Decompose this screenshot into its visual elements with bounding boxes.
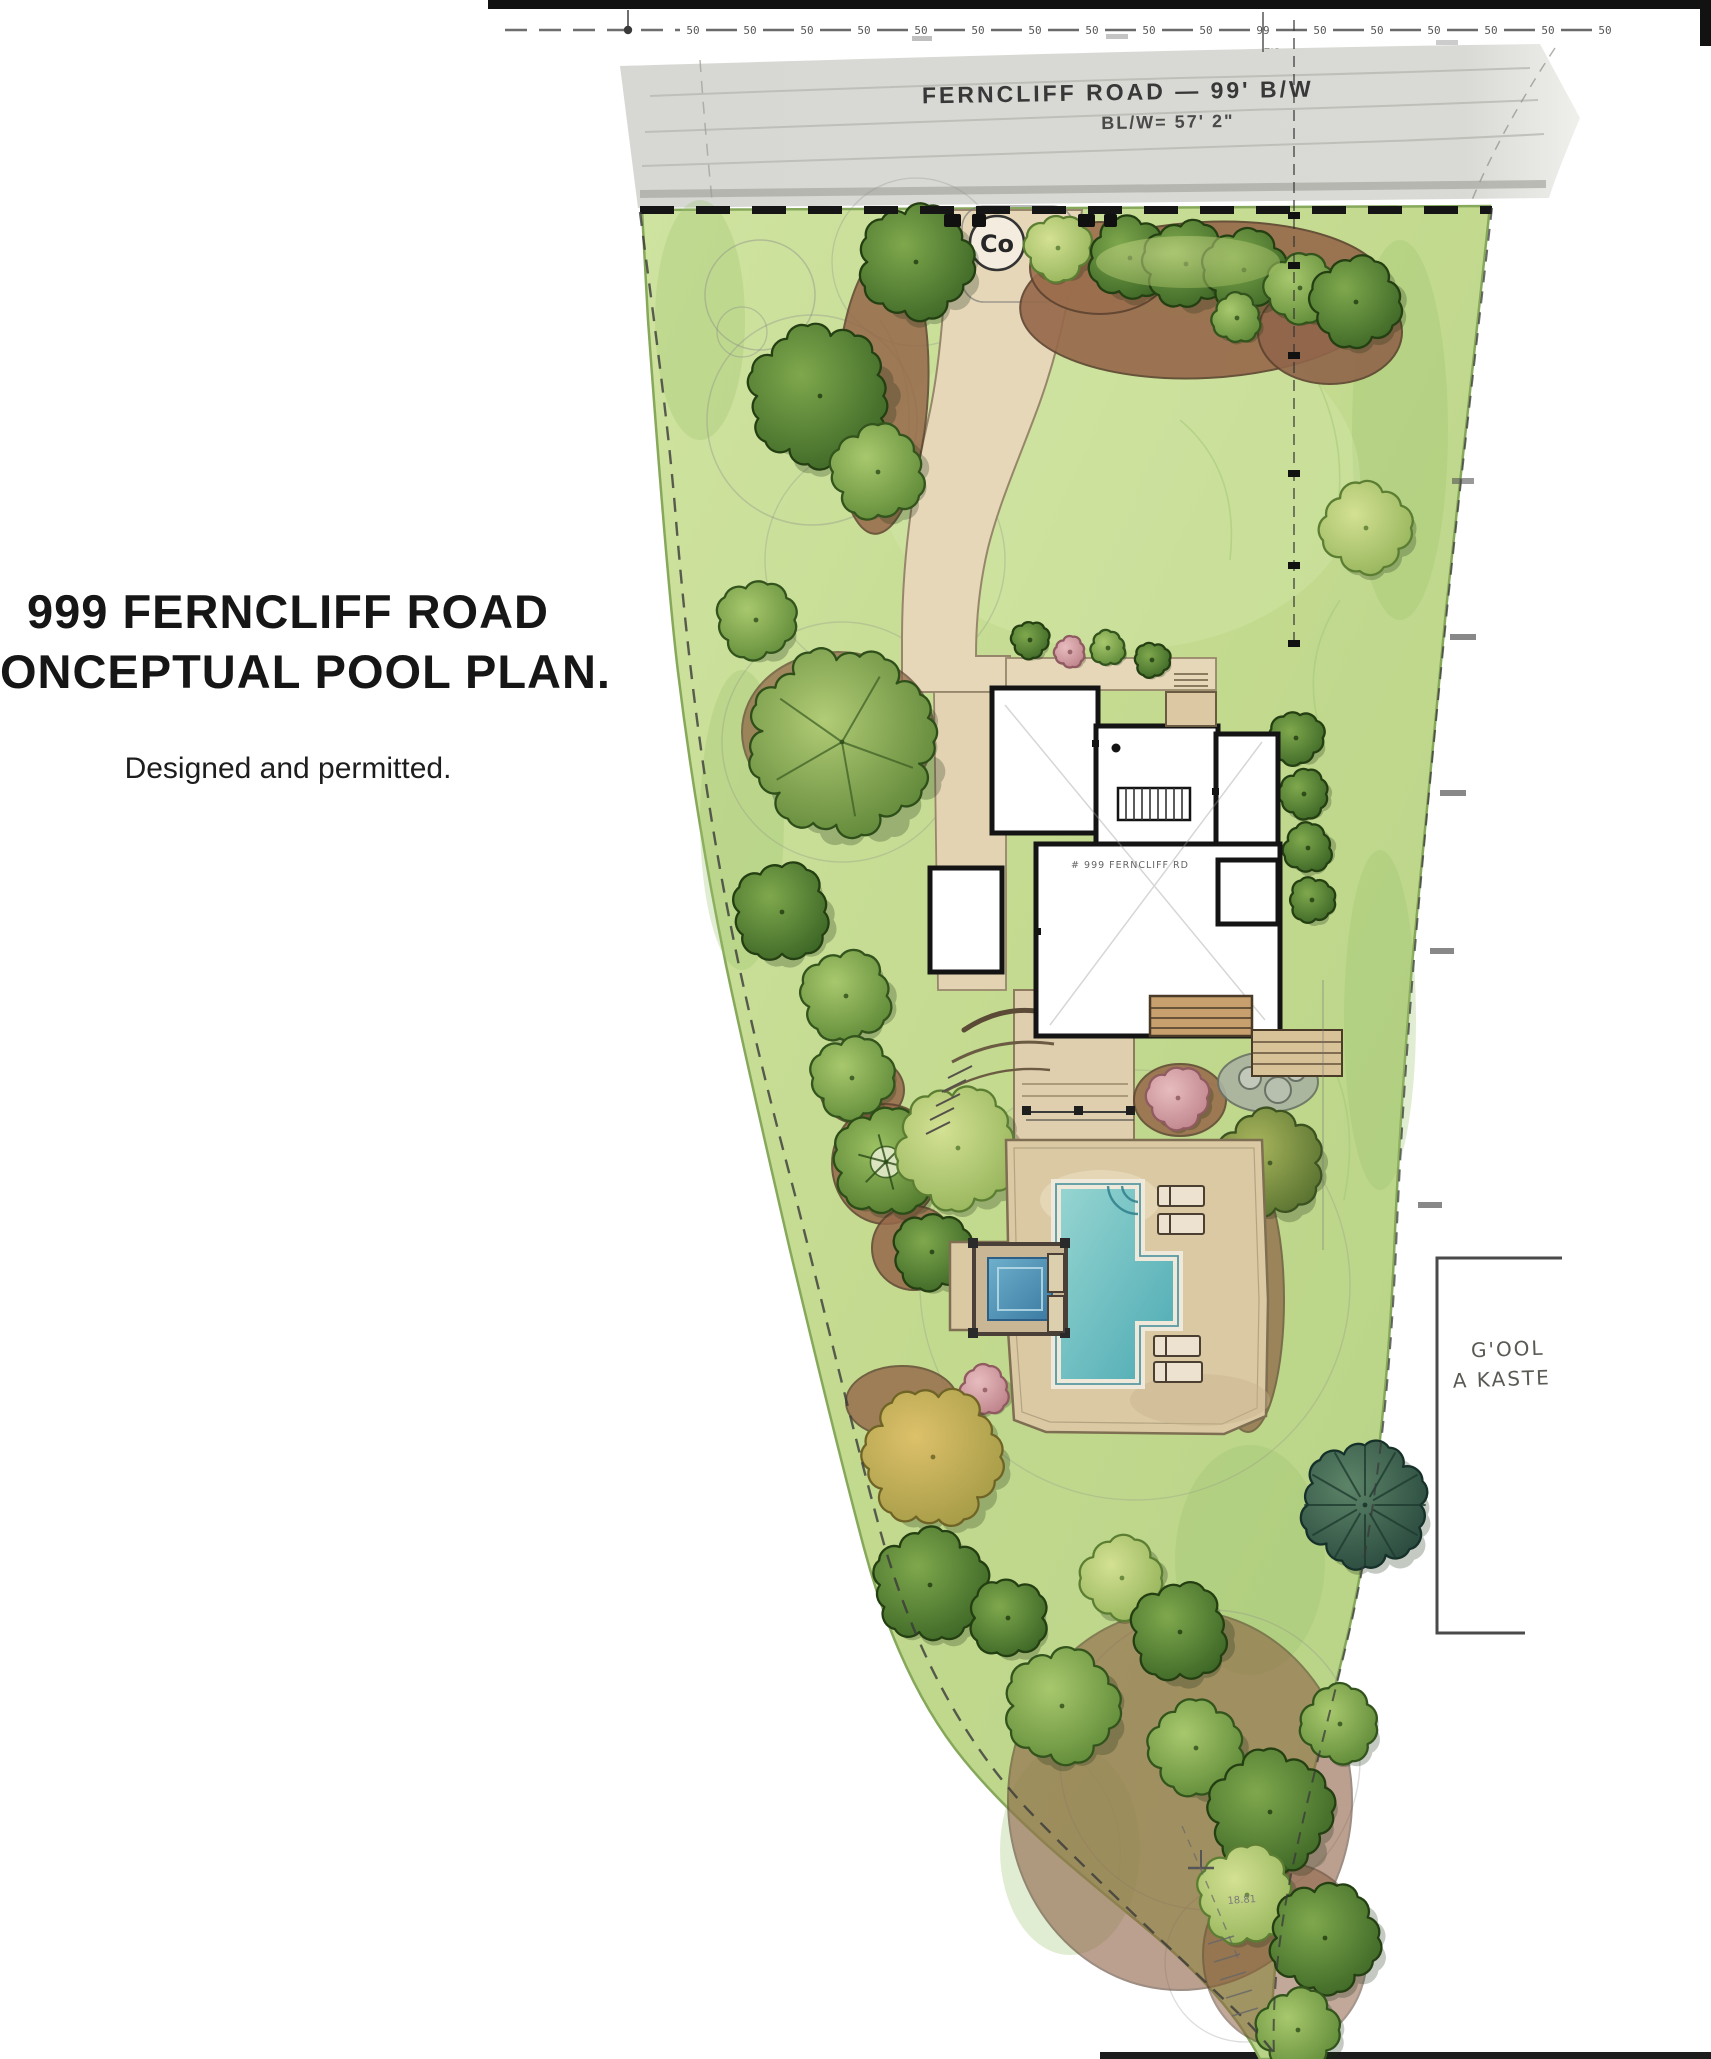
title-block: 999 FERNCLIFF ROAD CONCEPTUAL POOL PLAN.…	[0, 585, 611, 785]
ruler-tick-label: 50	[1598, 24, 1611, 37]
tree-dark	[971, 1580, 1049, 1661]
house-label: # 999 FERNCLIFF RD	[1071, 860, 1189, 871]
pool-note: G'OOL A KASTE	[1437, 1258, 1562, 1633]
bottom-mark-label: 18.81	[1227, 1894, 1256, 1907]
ruler-tick-label: 50	[857, 24, 870, 37]
ruler-tick-label: 50	[800, 24, 813, 37]
ruler-tick-label: 50	[1199, 24, 1212, 37]
road-width-label: BL/W= 57' 2"	[1101, 111, 1235, 133]
tree-green	[717, 581, 797, 662]
ruler-tick-label: 50	[743, 24, 756, 37]
page-title-line1: 999 FERNCLIFF ROAD	[27, 585, 549, 638]
lounger	[1158, 1186, 1204, 1206]
ruler-tick-label: 50	[1313, 24, 1326, 37]
hedge-highlight	[1096, 236, 1280, 288]
page-subtitle: Designed and permitted.	[125, 752, 452, 785]
ruler-tick-label: 50	[971, 24, 984, 37]
lounger	[1158, 1214, 1204, 1234]
site-plan-drawing: 5050505050505050505099505050505050 7'8 F…	[0, 0, 1711, 2059]
ruler-tick-label: 50	[914, 24, 927, 37]
interior-stairs	[1118, 788, 1190, 820]
ruler-tick-label: 50	[1541, 24, 1554, 37]
ruler-tick-label: 50	[1370, 24, 1383, 37]
lounger	[1154, 1336, 1200, 1356]
road-band: FERNCLIFF ROAD — 99' B/W BL/W= 57' 2"	[620, 44, 1580, 208]
pool-note-line2: A KASTE	[1452, 1365, 1551, 1392]
ruler-tick-label: 50	[1085, 24, 1098, 37]
lounger	[1154, 1362, 1202, 1382]
ruler-tick-label: 50	[1028, 24, 1041, 37]
ruler-tick-label: 50	[686, 24, 699, 37]
ruler-tick-label: 50	[1142, 24, 1155, 37]
spa	[968, 1238, 1070, 1338]
ruler-tick-label: 50	[1427, 24, 1440, 37]
curb-marker-label: Co	[980, 230, 1014, 258]
ruler-ticks: 5050505050505050505099505050505050	[686, 24, 1611, 37]
pool-note-line1: G'OOL	[1471, 1336, 1545, 1363]
ruler-tick-label: 50	[1484, 24, 1497, 37]
page-title-line2: CONCEPTUAL POOL PLAN.	[0, 645, 611, 698]
